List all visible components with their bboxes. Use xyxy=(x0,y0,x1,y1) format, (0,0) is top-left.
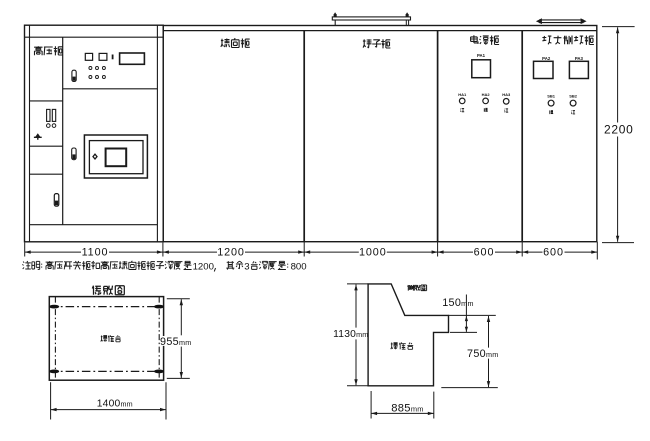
svg-text:HA2: HA2 xyxy=(482,92,491,97)
svg-text:1200: 1200 xyxy=(217,246,245,258)
svg-text:600: 600 xyxy=(474,246,495,258)
svg-text:PA2: PA2 xyxy=(542,56,551,61)
svg-text:1100: 1100 xyxy=(82,246,109,258)
svg-text:600: 600 xyxy=(543,246,564,258)
svg-text:2200: 2200 xyxy=(604,123,634,137)
svg-text:3: 3 xyxy=(244,261,249,272)
svg-text:HA3: HA3 xyxy=(502,92,511,97)
svg-text:1000: 1000 xyxy=(359,246,387,258)
svg-text:1200: 1200 xyxy=(193,261,214,272)
svg-text:800: 800 xyxy=(291,261,307,272)
svg-text:1130mm: 1130mm xyxy=(333,329,368,340)
svg-text:PA3: PA3 xyxy=(575,56,584,61)
svg-text:PA1: PA1 xyxy=(477,53,486,58)
svg-text:HA1: HA1 xyxy=(458,92,467,97)
svg-text:SB2: SB2 xyxy=(569,93,578,98)
svg-text:150mm: 150mm xyxy=(442,297,474,309)
svg-text:885mm: 885mm xyxy=(391,403,424,415)
svg-text:750mm: 750mm xyxy=(467,348,499,360)
svg-text:955mm: 955mm xyxy=(160,336,192,348)
svg-text:SB1: SB1 xyxy=(547,93,556,98)
svg-text:1400mm: 1400mm xyxy=(97,399,133,410)
